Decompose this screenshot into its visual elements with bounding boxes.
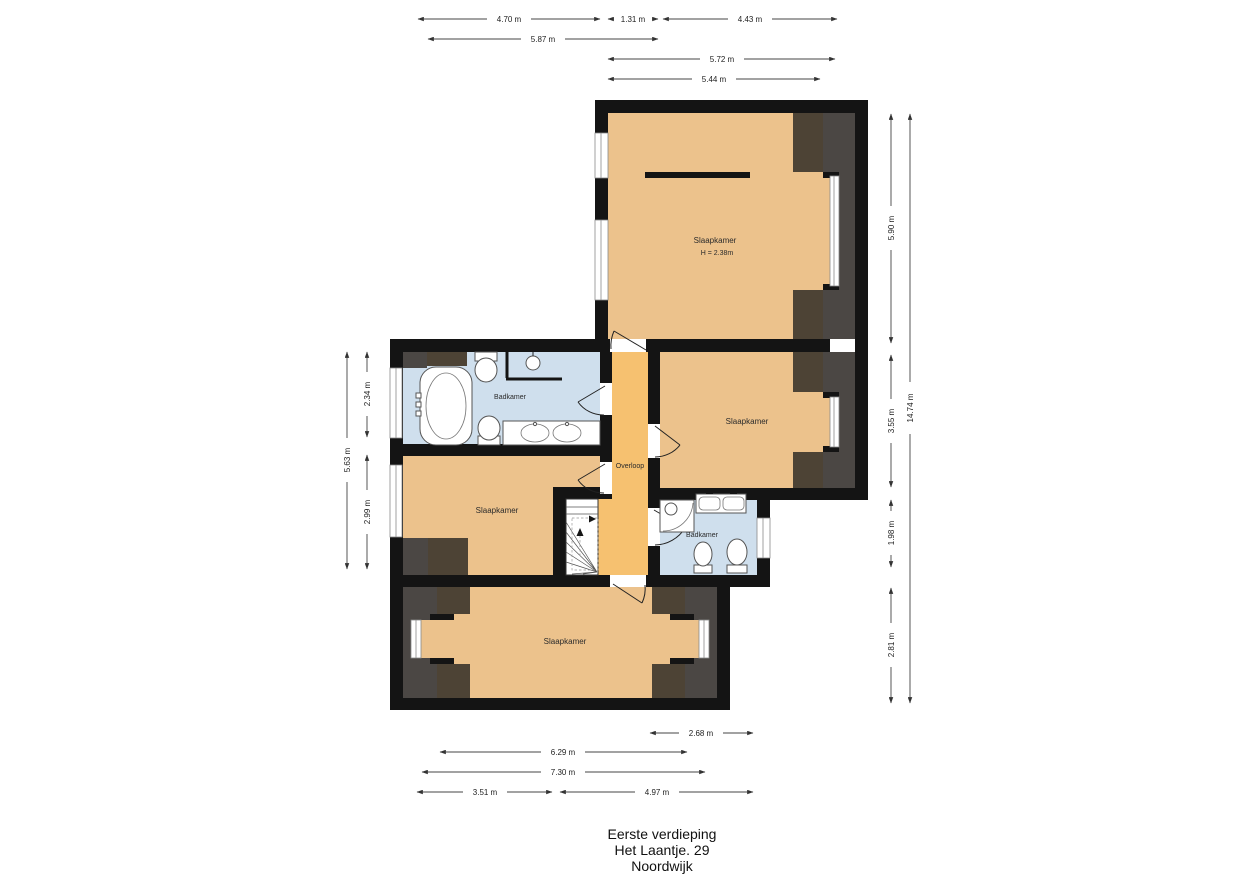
dim-label: 5.72 m xyxy=(710,55,735,64)
dim-label: 14.74 m xyxy=(906,393,915,422)
dim-label: 5.44 m xyxy=(702,75,727,84)
dimension-lines-right: 5.90 m 3.55 m 1.98 m 2.81 m 14.74 m xyxy=(885,114,916,703)
window xyxy=(699,620,709,658)
title-floor: Eerste verdieping xyxy=(608,826,717,842)
floor-plan-drawing: 4.70 m 1.31 m 4.43 m 5.87 m 5.72 m 5.44 … xyxy=(0,0,1258,890)
staircase xyxy=(566,499,598,575)
double-sink-vanity xyxy=(503,421,600,445)
room-label-bedroom-right: Slaapkamer xyxy=(726,417,769,426)
dim-label: 1.98 m xyxy=(887,520,896,545)
title-address: Het Laantje. 29 xyxy=(615,842,710,858)
dim-label: 4.97 m xyxy=(645,788,670,797)
dim-label: 2.34 m xyxy=(363,381,372,406)
window xyxy=(595,220,608,300)
room-label-bedroom-top: Slaapkamer xyxy=(694,236,737,245)
dimension-lines-left: 5.63 m 2.34 m 2.99 m xyxy=(341,352,373,569)
room-label-bedroom-bottom: Slaapkamer xyxy=(544,637,587,646)
window xyxy=(830,176,839,286)
dim-label: 4.43 m xyxy=(738,15,763,24)
room-label-bedroom-left: Slaapkamer xyxy=(476,506,519,515)
dim-label: 4.70 m xyxy=(497,15,522,24)
dim-label: 3.55 m xyxy=(887,408,896,433)
dim-label: 2.81 m xyxy=(887,632,896,657)
room-label-bathroom-top: Badkamer xyxy=(494,394,527,401)
dimension-lines-bottom: 2.68 m 6.29 m 7.30 m 3.51 m 4.97 m xyxy=(417,727,753,797)
dim-label: 3.51 m xyxy=(473,788,498,797)
window xyxy=(830,397,839,447)
dim-label: 5.63 m xyxy=(343,447,352,472)
bathtub xyxy=(416,367,472,445)
dim-label: 2.68 m xyxy=(689,729,714,738)
plan-title: Eerste verdieping Het Laantje. 29 Noordw… xyxy=(608,826,717,874)
room-label-landing: Overloop xyxy=(616,463,645,470)
room-height-note: H = 2.38m xyxy=(701,250,734,257)
dimension-lines-top: 4.70 m 1.31 m 4.43 m 5.87 m 5.72 m 5.44 … xyxy=(418,13,837,84)
toilet xyxy=(478,416,500,445)
window xyxy=(411,620,421,658)
window xyxy=(595,133,608,178)
window xyxy=(757,518,770,558)
dim-label: 7.30 m xyxy=(551,768,576,777)
toilet xyxy=(727,539,747,573)
bedroom-top-partition-bar xyxy=(645,172,750,178)
dim-label: 2.99 m xyxy=(363,499,372,524)
title-city: Noordwijk xyxy=(631,858,693,874)
window xyxy=(390,465,402,537)
room-label-bathroom-bottom: Badkamer xyxy=(686,532,719,539)
toilet xyxy=(694,542,712,573)
window xyxy=(390,368,402,438)
dim-label: 1.31 m xyxy=(621,15,646,24)
double-sink-vanity xyxy=(696,491,746,513)
floor-plan-page: 4.70 m 1.31 m 4.43 m 5.87 m 5.72 m 5.44 … xyxy=(0,0,1258,890)
dim-label: 5.90 m xyxy=(887,215,896,240)
corner-shower xyxy=(660,500,694,532)
dim-label: 6.29 m xyxy=(551,748,576,757)
room-bedroom-left xyxy=(403,456,600,487)
dim-label: 5.87 m xyxy=(531,35,556,44)
toilet xyxy=(475,352,497,382)
